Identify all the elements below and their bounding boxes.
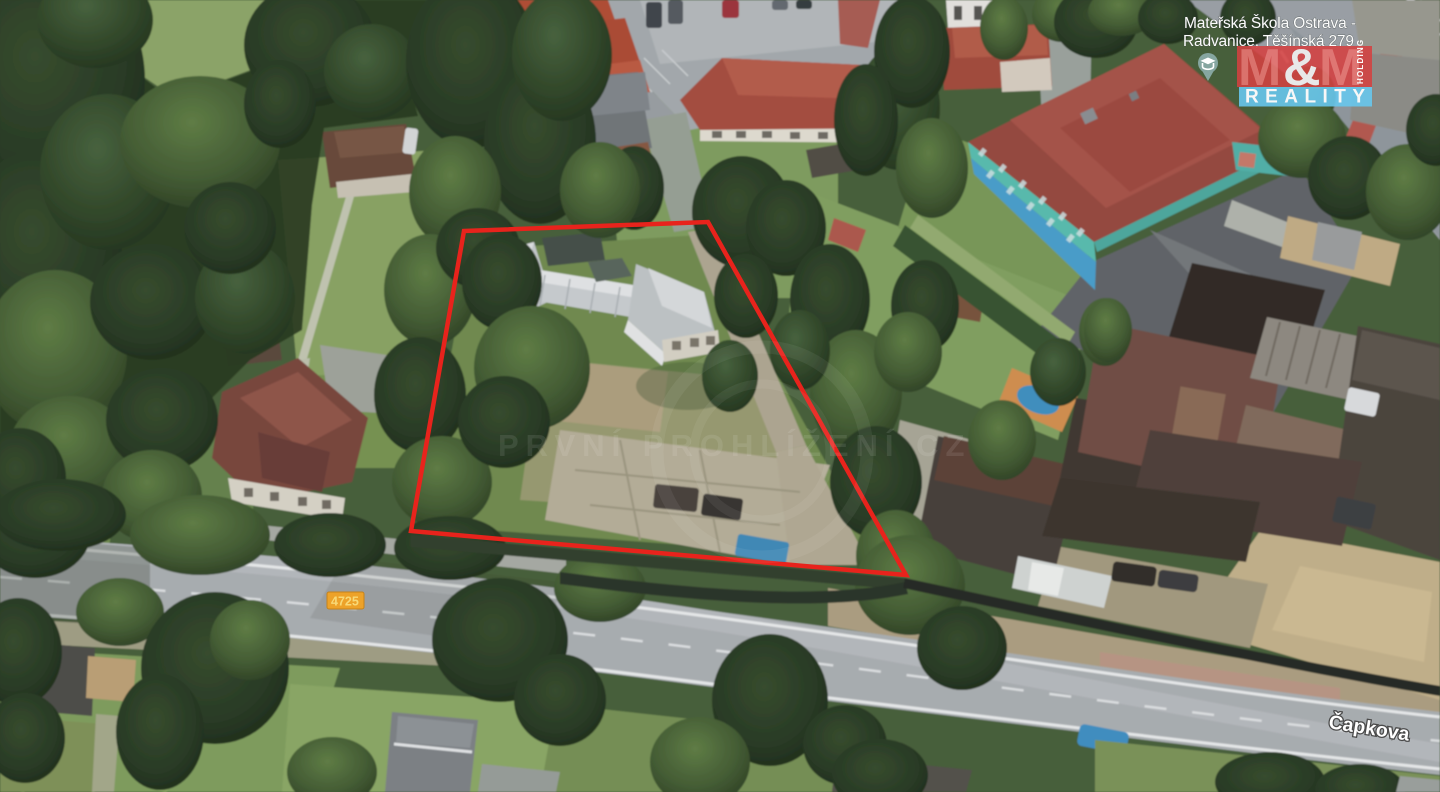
svg-text:4725: 4725 bbox=[331, 595, 359, 609]
svg-text:HOLDING: HOLDING bbox=[1356, 39, 1365, 84]
svg-text:Mateřská Škola Ostrava -: Mateřská Škola Ostrava - bbox=[1184, 15, 1356, 32]
svg-text:PRVNÍ PROHLÍŽENÍ CZ: PRVNÍ PROHLÍŽENÍ CZ bbox=[498, 427, 971, 463]
